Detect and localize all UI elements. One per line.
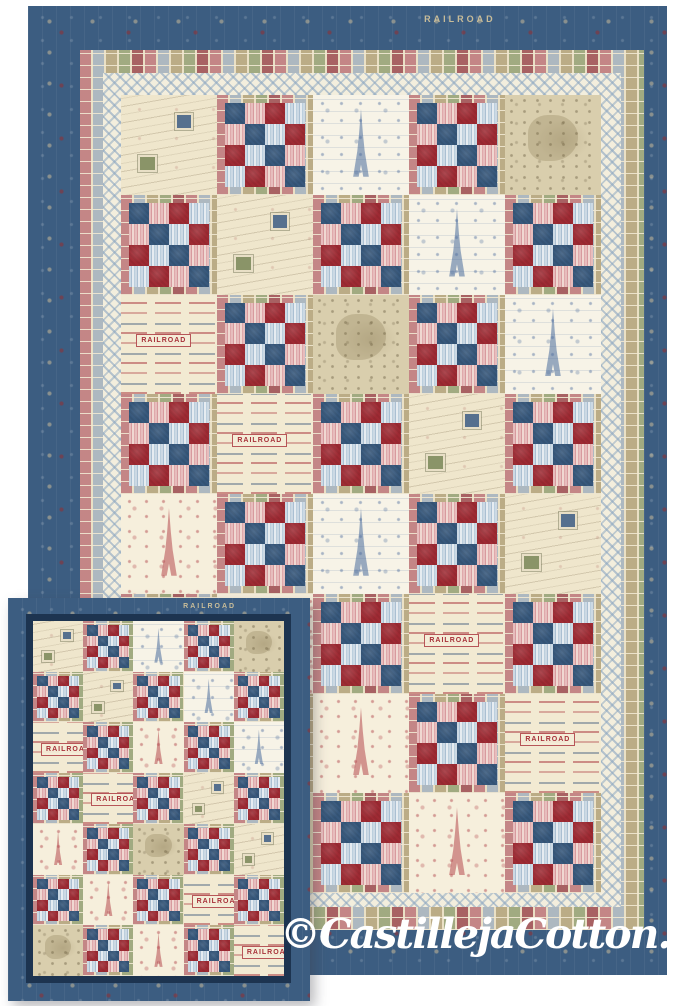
chain-block [313, 394, 409, 494]
chain-cell-pale [148, 798, 159, 809]
watermark-text: ©CastillejaCotton.com [280, 910, 700, 958]
chain-cell-blue [513, 602, 533, 623]
chain-block [409, 95, 505, 195]
chain-cell-blue [225, 103, 245, 124]
chain-cell-pink [533, 801, 553, 822]
block-letters [217, 195, 313, 295]
chain-cell-pale [169, 676, 180, 687]
chain-cell-pink [238, 788, 249, 799]
chain-cell-pale [225, 365, 245, 386]
chain-cell-blue [149, 224, 169, 245]
chain-cell-blue [285, 365, 305, 386]
chain-block-patches [238, 777, 280, 820]
quilt-product-photo: RAILROAD RAILROAD RAILROADRAILROADRAILRO… [0, 0, 700, 1006]
chain-cell-red [169, 686, 180, 697]
chain-cell-pink [437, 303, 457, 324]
chain-block [33, 875, 83, 926]
chain-cell-blue [573, 665, 593, 686]
chain-cell-pink [108, 657, 119, 668]
postage-stamp-motif [559, 512, 577, 529]
chain-block-patches [321, 801, 401, 885]
chain-cell-blue [108, 849, 119, 860]
block-letters [505, 494, 601, 594]
chain-cell-pink [119, 849, 130, 860]
chain-cell-pale [245, 145, 265, 166]
chain-block-patches [513, 602, 593, 686]
chain-cell-pink [87, 636, 98, 647]
chain-block [234, 672, 284, 723]
chain-cell-red [341, 266, 361, 287]
chain-cell-pale [259, 889, 270, 900]
chain-cell-pink [129, 423, 149, 444]
chain-cell-pink [513, 822, 533, 843]
chain-block-patches [137, 879, 179, 922]
chain-cell-pale [69, 879, 80, 890]
chain-cell-pink [209, 758, 220, 769]
chain-cell-pale [285, 103, 305, 124]
chain-cell-pale [198, 748, 209, 759]
block-paris_red [133, 722, 183, 773]
chain-cell-red [58, 777, 69, 788]
chain-cell-pink [58, 911, 69, 922]
chain-cell-pale [477, 103, 497, 124]
chain-cell-red [573, 623, 593, 644]
chain-cell-red [361, 602, 381, 623]
chain-cell-red [48, 708, 59, 719]
chain-cell-pale [48, 798, 59, 809]
chain-block [83, 824, 133, 875]
chain-cell-blue [321, 801, 341, 822]
chain-cell-pink [108, 860, 119, 871]
chain-cell-pale [321, 665, 341, 686]
chain-cell-pink [245, 502, 265, 523]
chain-cell-pale [245, 344, 265, 365]
chain-block-patches [225, 303, 305, 387]
chain-cell-pink [137, 686, 148, 697]
chain-cell-pink [553, 864, 573, 885]
eiffel-tower-motif [349, 508, 372, 576]
chain-cell-pale [37, 708, 48, 719]
chain-cell-pink [269, 697, 280, 708]
chain-cell-pale [381, 203, 401, 224]
eiffel-tower-motif [349, 707, 372, 775]
chain-cell-blue [188, 828, 199, 839]
chain-cell-pink [285, 344, 305, 365]
chain-cell-pale [269, 676, 280, 687]
chain-cell-pale [533, 245, 553, 266]
chain-cell-pale [137, 911, 148, 922]
chain-cell-blue [37, 879, 48, 890]
chain-cell-pale [108, 839, 119, 850]
chain-cell-pink [533, 402, 553, 423]
chain-cell-red [188, 748, 199, 759]
chain-cell-blue [225, 502, 245, 523]
chain-cell-red [553, 602, 573, 623]
chain-cell-pale [87, 758, 98, 769]
chain-cell-blue [148, 788, 159, 799]
chain-cell-pink [225, 124, 245, 145]
chain-cell-blue [169, 708, 180, 719]
chain-cell-blue [129, 402, 149, 423]
chain-cell-pale [58, 788, 69, 799]
chain-cell-blue [188, 929, 199, 940]
chain-cell-pink [48, 676, 59, 687]
advertisement-text-motif: RAILROAD [424, 634, 479, 647]
chain-cell-blue [553, 644, 573, 665]
chain-cell-pale [248, 697, 259, 708]
chain-cell-pink [48, 879, 59, 890]
chain-cell-pink [108, 961, 119, 972]
chain-cell-pink [158, 809, 169, 820]
chain-cell-pale [477, 303, 497, 324]
chain-cell-red [148, 809, 159, 820]
chain-cell-pale [219, 929, 230, 940]
chain-block-patches [37, 777, 79, 820]
chain-cell-red [381, 423, 401, 444]
chain-cell-pink [119, 646, 130, 657]
chain-cell-blue [553, 444, 573, 465]
chain-cell-red [285, 124, 305, 145]
chain-block-patches [321, 402, 401, 486]
chain-cell-pink [209, 860, 220, 871]
chain-block-patches [137, 777, 179, 820]
chain-cell-blue [437, 323, 457, 344]
chain-cell-red [245, 565, 265, 586]
block-ads: RAILROAD [409, 594, 505, 694]
chain-cell-red [48, 911, 59, 922]
advertisement-text-motif: RAILROAD [41, 743, 83, 756]
chain-cell-pale [108, 737, 119, 748]
chain-cell-pale [225, 565, 245, 586]
chain-cell-pale [341, 843, 361, 864]
block-letters [184, 773, 234, 824]
chain-cell-pink [198, 929, 209, 940]
chain-cell-pink [87, 940, 98, 951]
chain-cell-red [219, 839, 230, 850]
chain-cell-blue [148, 889, 159, 900]
chain-cell-blue [457, 544, 477, 565]
chain-cell-blue [209, 951, 220, 962]
chain-cell-blue [269, 911, 280, 922]
chain-cell-blue [108, 951, 119, 962]
chain-cell-pale [98, 849, 109, 860]
chain-cell-pink [361, 665, 381, 686]
chain-cell-pink [219, 951, 230, 962]
chain-block-patches [129, 203, 209, 287]
chain-block [184, 722, 234, 773]
chain-cell-pale [48, 900, 59, 911]
chain-cell-pink [245, 103, 265, 124]
chain-cell-red [108, 929, 119, 940]
chain-block [184, 925, 234, 976]
chain-cell-pink [219, 849, 230, 860]
chain-cell-pink [98, 726, 109, 737]
postage-stamp-motif [111, 681, 123, 692]
chain-cell-blue [219, 657, 230, 668]
chain-cell-pink [58, 809, 69, 820]
chain-cell-pale [533, 644, 553, 665]
chain-cell-pink [259, 708, 270, 719]
chain-cell-blue [48, 889, 59, 900]
chain-cell-red [321, 843, 341, 864]
chain-block [409, 694, 505, 794]
chain-cell-pale [119, 625, 130, 636]
chain-cell-pale [259, 788, 270, 799]
chain-cell-pale [69, 777, 80, 788]
chain-cell-red [361, 801, 381, 822]
chain-cell-pink [477, 344, 497, 365]
block-map [133, 824, 183, 875]
chain-cell-blue [198, 940, 209, 951]
chain-cell-pale [158, 686, 169, 697]
block-letters [83, 672, 133, 723]
chain-cell-pale [238, 708, 249, 719]
chain-cell-pink [149, 203, 169, 224]
chain-block-patches [417, 702, 497, 786]
chain-cell-pink [381, 644, 401, 665]
chain-block [217, 494, 313, 594]
chain-cell-pale [341, 245, 361, 266]
chain-cell-blue [58, 798, 69, 809]
chain-cell-pale [259, 686, 270, 697]
chain-cell-pale [457, 722, 477, 743]
chain-cell-blue [137, 879, 148, 890]
chain-cell-blue [189, 266, 209, 287]
chain-block [313, 594, 409, 694]
small-quilt: RAILROAD RAILROADRAILROADRAILROADRAILROA… [8, 598, 310, 1001]
chain-cell-pale [573, 801, 593, 822]
chain-cell-blue [219, 860, 230, 871]
chain-cell-pink [119, 748, 130, 759]
chain-cell-pale [248, 900, 259, 911]
postage-stamp-motif [271, 213, 289, 230]
chain-cell-blue [189, 465, 209, 486]
chain-cell-red [158, 879, 169, 890]
chain-cell-pink [98, 625, 109, 636]
chain-cell-pink [417, 722, 437, 743]
chain-cell-blue [188, 625, 199, 636]
chain-block [313, 195, 409, 295]
chain-cell-pink [188, 940, 199, 951]
chain-cell-blue [553, 843, 573, 864]
chain-cell-blue [381, 665, 401, 686]
chain-cell-red [98, 758, 109, 769]
chain-cell-pink [361, 864, 381, 885]
chain-cell-blue [69, 809, 80, 820]
chain-cell-pink [265, 166, 285, 187]
chain-cell-blue [137, 676, 148, 687]
chain-cell-pink [189, 245, 209, 266]
chain-cell-pale [553, 224, 573, 245]
chain-block-patches [417, 502, 497, 586]
chain-cell-blue [198, 636, 209, 647]
chain-block-patches [417, 303, 497, 387]
chain-cell-blue [198, 737, 209, 748]
chain-cell-pink [149, 402, 169, 423]
chain-cell-pink [477, 145, 497, 166]
chain-cell-red [209, 625, 220, 636]
chain-cell-pale [87, 657, 98, 668]
chain-cell-pale [209, 737, 220, 748]
chain-cell-red [169, 889, 180, 900]
chain-cell-red [137, 900, 148, 911]
chain-cell-pale [381, 402, 401, 423]
chain-cell-red [225, 344, 245, 365]
chain-cell-pink [58, 708, 69, 719]
chain-block-patches [87, 929, 129, 972]
chain-block-patches [129, 402, 209, 486]
postage-stamp-motif [92, 702, 104, 713]
chain-cell-red [381, 623, 401, 644]
chain-cell-blue [248, 686, 259, 697]
postage-stamp-motif [262, 833, 274, 844]
eiffel-tower-motif [102, 882, 114, 916]
chain-cell-red [58, 879, 69, 890]
chain-cell-pink [341, 402, 361, 423]
chain-cell-pink [238, 686, 249, 697]
chain-cell-red [285, 323, 305, 344]
chain-cell-pale [553, 623, 573, 644]
chain-cell-pink [259, 911, 270, 922]
chain-cell-red [533, 266, 553, 287]
block-paris_red [409, 793, 505, 893]
chain-cell-pale [158, 788, 169, 799]
chain-cell-pink [198, 726, 209, 737]
chain-cell-pink [437, 502, 457, 523]
chain-cell-pale [48, 697, 59, 708]
chain-cell-pink [513, 623, 533, 644]
chain-cell-red [69, 889, 80, 900]
advertisement-text-motif: RAILROAD [192, 895, 234, 908]
chain-cell-red [225, 145, 245, 166]
chain-cell-pale [169, 777, 180, 788]
chain-cell-pink [269, 900, 280, 911]
chain-cell-blue [321, 602, 341, 623]
chain-cell-blue [265, 145, 285, 166]
chain-cell-pale [417, 166, 437, 187]
chain-cell-blue [341, 224, 361, 245]
chain-cell-blue [169, 911, 180, 922]
chain-cell-pink [225, 323, 245, 344]
block-letters [121, 95, 217, 195]
chain-cell-red [457, 502, 477, 523]
chain-cell-blue [341, 623, 361, 644]
chain-cell-pale [108, 940, 119, 951]
chain-block-patches [417, 103, 497, 187]
chain-cell-red [119, 940, 130, 951]
chain-cell-pink [169, 900, 180, 911]
chain-cell-pink [87, 839, 98, 850]
block-paris_red [313, 694, 409, 794]
chain-cell-pale [513, 864, 533, 885]
chain-cell-pale [119, 929, 130, 940]
chain-cell-red [198, 758, 209, 769]
block-map [505, 95, 601, 195]
chain-cell-red [188, 646, 199, 657]
chain-block [505, 594, 601, 694]
chain-cell-pink [381, 444, 401, 465]
chain-cell-blue [259, 697, 270, 708]
chain-cell-red [169, 788, 180, 799]
chain-cell-blue [259, 900, 270, 911]
chain-cell-blue [129, 203, 149, 224]
chain-block [83, 722, 133, 773]
chain-cell-blue [361, 245, 381, 266]
chain-cell-pale [188, 860, 199, 871]
chain-cell-pale [188, 657, 199, 668]
block-ads: RAILROAD [184, 875, 234, 926]
chain-cell-blue [381, 266, 401, 287]
chain-cell-blue [361, 843, 381, 864]
chain-cell-pale [108, 636, 119, 647]
chain-cell-blue [457, 743, 477, 764]
chain-cell-red [457, 702, 477, 723]
block-ads: RAILROAD [217, 394, 313, 494]
chain-cell-pale [265, 124, 285, 145]
chain-cell-pink [198, 828, 209, 839]
chain-cell-red [513, 245, 533, 266]
chain-cell-pale [119, 828, 130, 839]
chain-cell-red [361, 402, 381, 423]
chain-cell-pale [513, 665, 533, 686]
chain-cell-blue [437, 722, 457, 743]
chain-cell-blue [169, 245, 189, 266]
chain-cell-pink [269, 798, 280, 809]
chain-cell-red [259, 676, 270, 687]
chain-cell-pink [321, 623, 341, 644]
block-ads: RAILROAD [121, 295, 217, 395]
chain-cell-pale [148, 900, 159, 911]
chain-cell-pale [238, 809, 249, 820]
border-fabric-text: RAILROAD [424, 14, 496, 24]
chain-block-patches [238, 879, 280, 922]
advertisement-text-motif: RAILROAD [91, 793, 133, 806]
chain-cell-pale [98, 748, 109, 759]
chain-cell-red [137, 697, 148, 708]
border-fabric-text: RAILROAD [183, 603, 236, 610]
chain-block [234, 875, 284, 926]
chain-cell-pale [321, 266, 341, 287]
chain-cell-red [108, 726, 119, 737]
chain-cell-pale [58, 686, 69, 697]
chain-cell-red [553, 402, 573, 423]
chain-cell-blue [108, 748, 119, 759]
chain-cell-pale [169, 879, 180, 890]
chain-block [121, 394, 217, 494]
block-map [33, 925, 83, 976]
chain-cell-pale [265, 323, 285, 344]
chain-block-patches [513, 801, 593, 885]
chain-cell-pink [98, 929, 109, 940]
chain-cell-red [321, 644, 341, 665]
eiffel-tower-motif [152, 932, 164, 966]
chain-cell-red [149, 266, 169, 287]
advertisement-text-motif: RAILROAD [520, 733, 575, 746]
chain-cell-pink [321, 822, 341, 843]
chain-cell-blue [437, 124, 457, 145]
chain-cell-pink [341, 602, 361, 623]
chain-cell-blue [238, 777, 249, 788]
chain-cell-pink [69, 900, 80, 911]
chain-cell-red [477, 722, 497, 743]
chain-cell-blue [37, 777, 48, 788]
chain-cell-pink [361, 266, 381, 287]
small-quilt-block-grid: RAILROADRAILROADRAILROADRAILROAD [33, 621, 284, 976]
chain-cell-pink [248, 676, 259, 687]
chain-cell-red [533, 864, 553, 885]
chain-cell-pink [259, 809, 270, 820]
block-paris_blue [409, 195, 505, 295]
